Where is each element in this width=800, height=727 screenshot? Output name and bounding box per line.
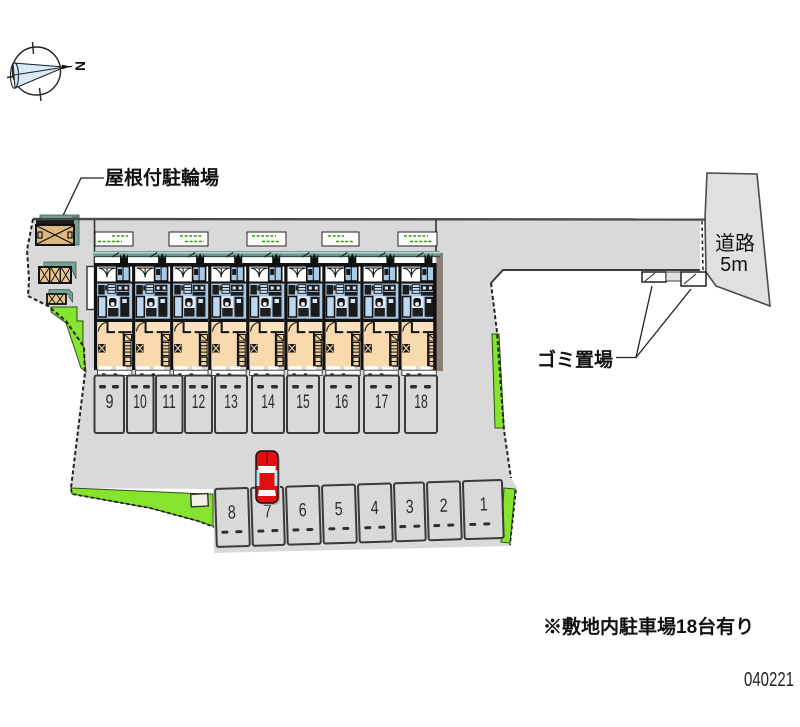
svg-text:N: N (72, 61, 87, 71)
svg-text:3: 3 (405, 497, 414, 518)
svg-text:5: 5 (334, 499, 343, 520)
svg-text:15: 15 (296, 392, 310, 413)
svg-text:8: 8 (227, 502, 236, 523)
svg-text:16: 16 (335, 392, 349, 413)
svg-text:11: 11 (162, 392, 176, 413)
svg-text:1: 1 (479, 494, 488, 515)
svg-text:屋根付駐輪場: 屋根付駐輪場 (105, 166, 219, 189)
svg-text:10: 10 (133, 392, 147, 413)
svg-text:14: 14 (261, 392, 275, 413)
svg-text:5m: 5m (720, 254, 748, 276)
svg-text:13: 13 (224, 392, 238, 413)
svg-text:6: 6 (298, 500, 307, 521)
svg-text:12: 12 (192, 392, 206, 413)
svg-text:17: 17 (375, 392, 389, 413)
svg-text:18: 18 (414, 392, 428, 413)
svg-text:9: 9 (106, 392, 114, 413)
svg-text:2: 2 (439, 496, 448, 517)
svg-text:※敷地内駐車場18台有り: ※敷地内駐車場18台有り (543, 615, 754, 638)
svg-text:道路: 道路 (715, 232, 755, 255)
svg-text:4: 4 (370, 498, 379, 519)
svg-text:ゴミ置場: ゴミ置場 (537, 348, 613, 371)
svg-text:040221: 040221 (744, 669, 794, 691)
